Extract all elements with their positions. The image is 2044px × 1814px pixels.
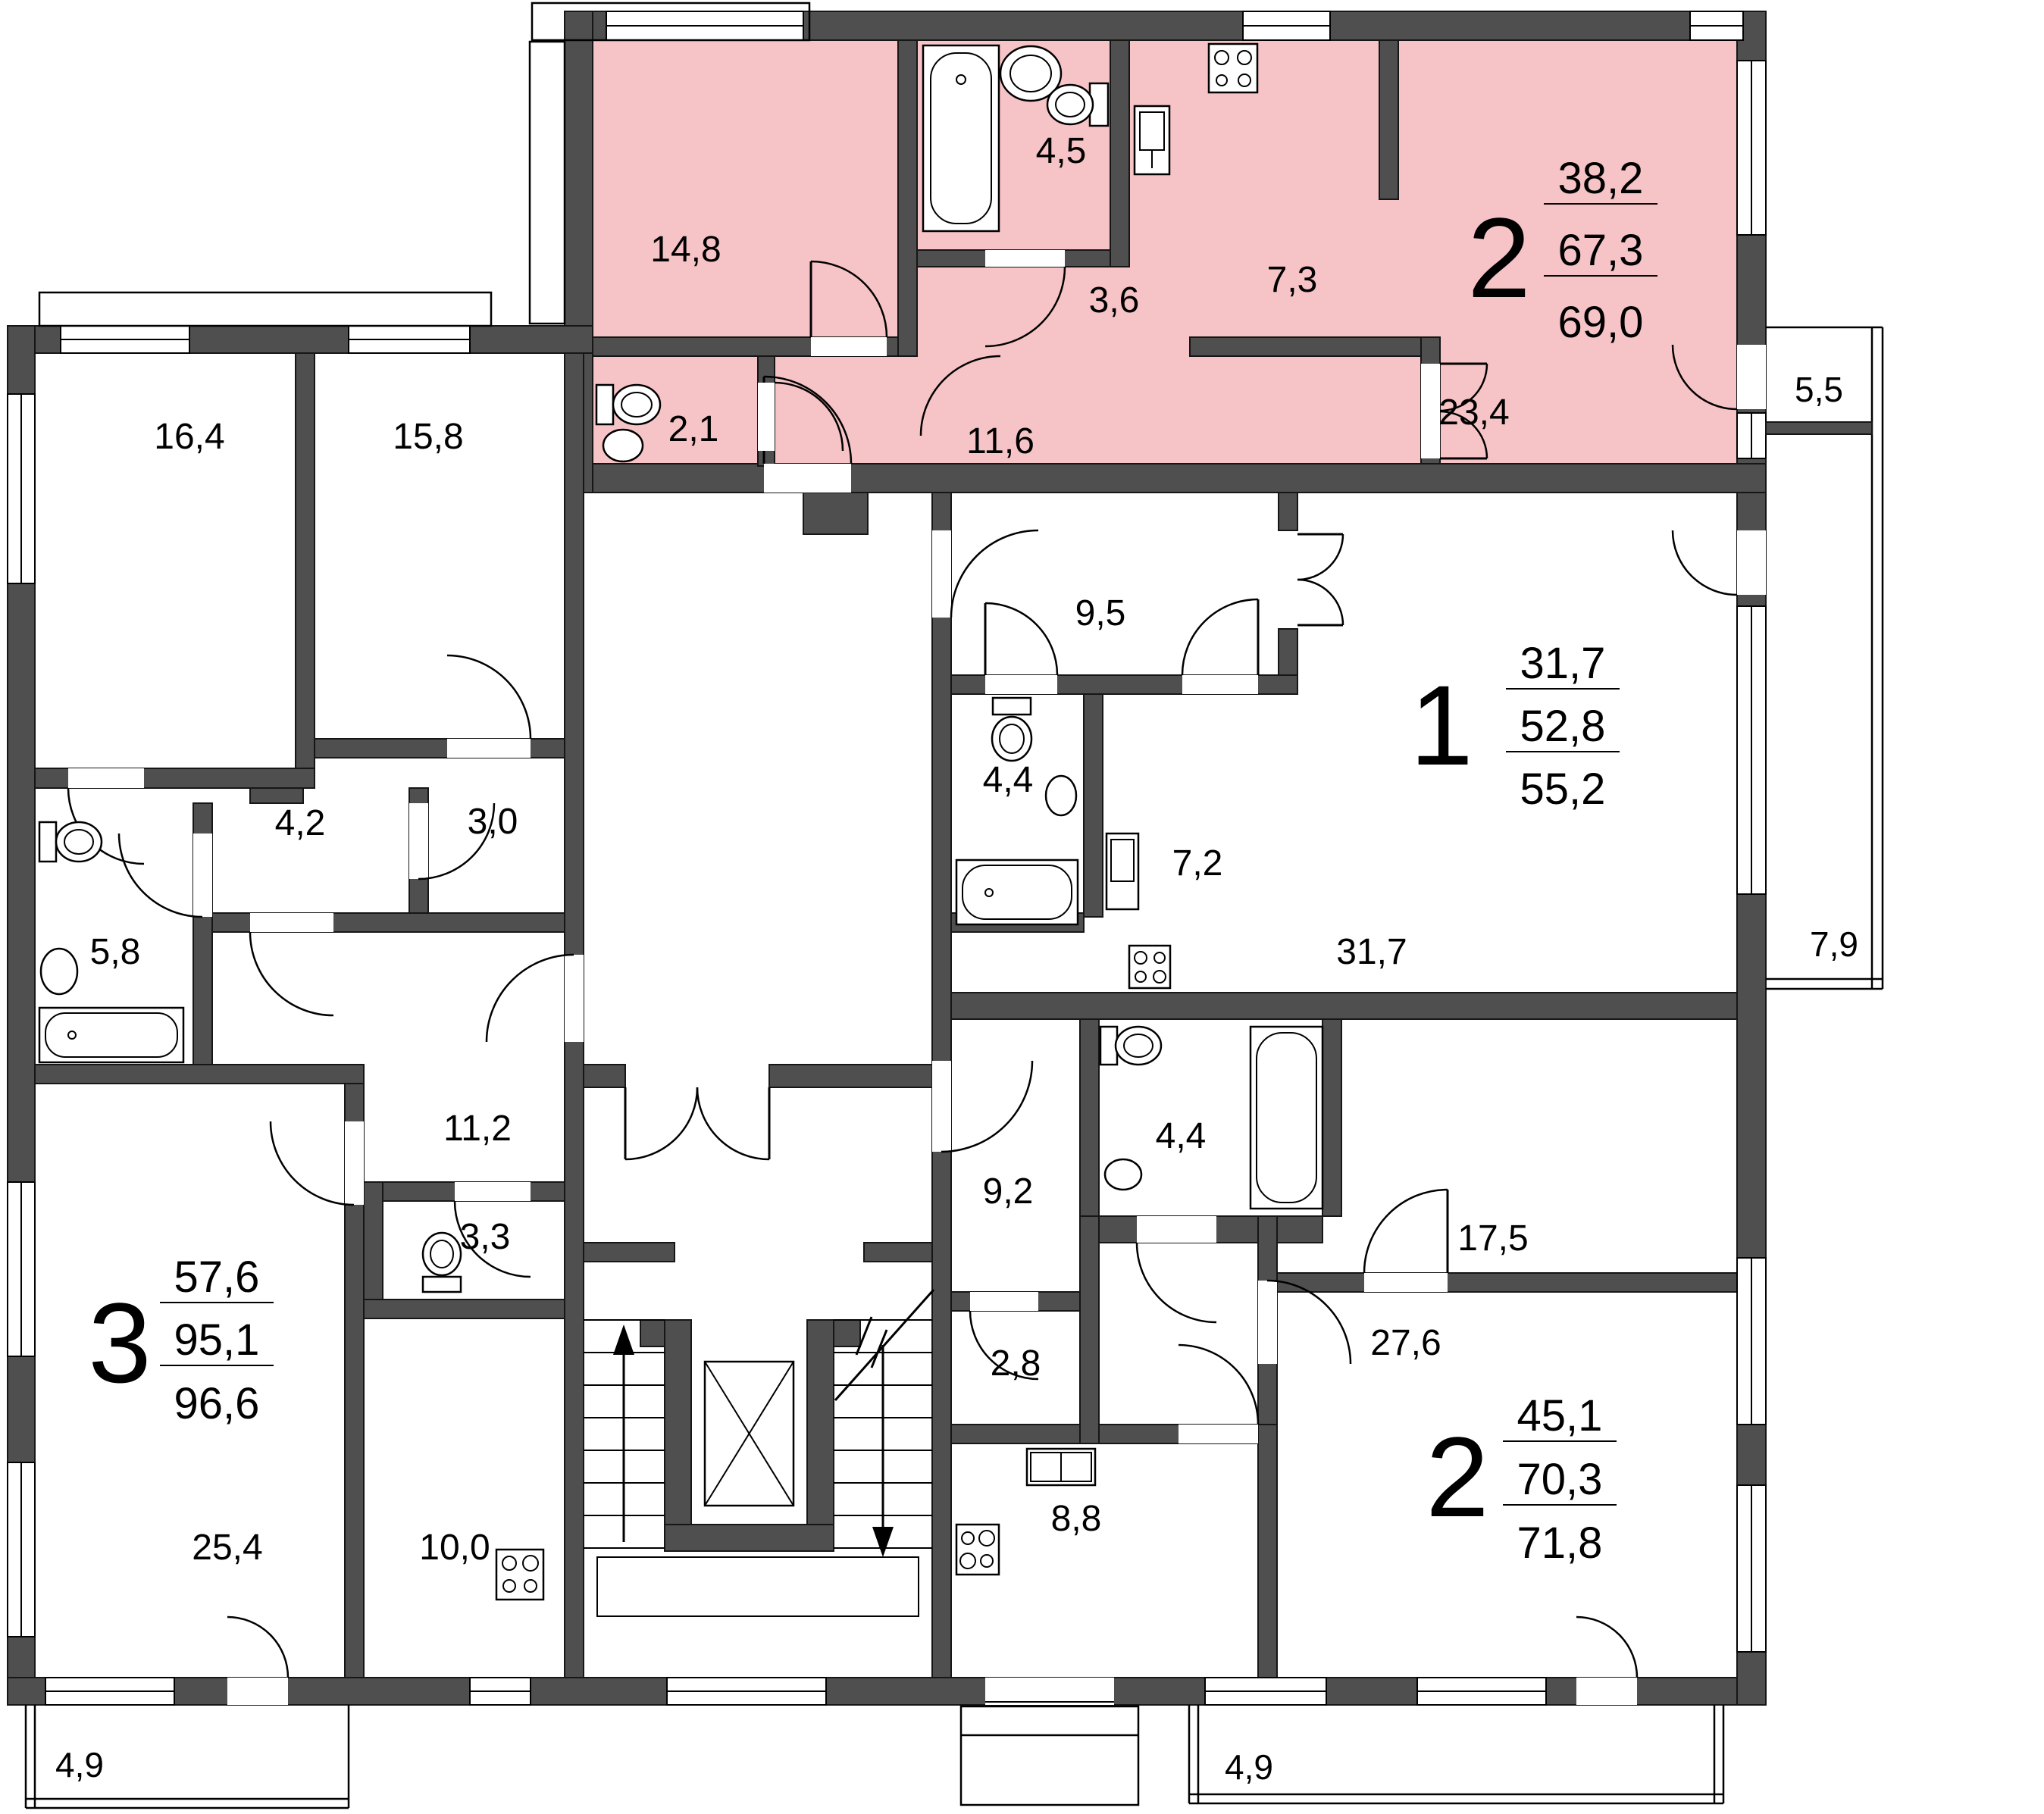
elevator bbox=[705, 1362, 793, 1506]
stairwell bbox=[584, 1290, 934, 1616]
balcony-label: 5,5 bbox=[1795, 370, 1843, 409]
floor-plan: 14,8 4,5 3,6 7,3 2,1 11,6 23,4 9,5 4,4 7… bbox=[0, 0, 2044, 1814]
apartment-2-bottom-hotspot[interactable] bbox=[951, 1019, 1737, 1678]
stair-landing bbox=[597, 1557, 919, 1616]
apartment-1-hotspot[interactable] bbox=[951, 493, 1737, 993]
apartment-3-hotspot[interactable] bbox=[35, 353, 565, 1678]
balcony-label: 4,9 bbox=[55, 1745, 104, 1784]
apartment-2-top-hotspot[interactable] bbox=[584, 30, 1737, 464]
balcony-label: 7,9 bbox=[1810, 924, 1858, 964]
balcony-label: 4,9 bbox=[1225, 1747, 1273, 1787]
